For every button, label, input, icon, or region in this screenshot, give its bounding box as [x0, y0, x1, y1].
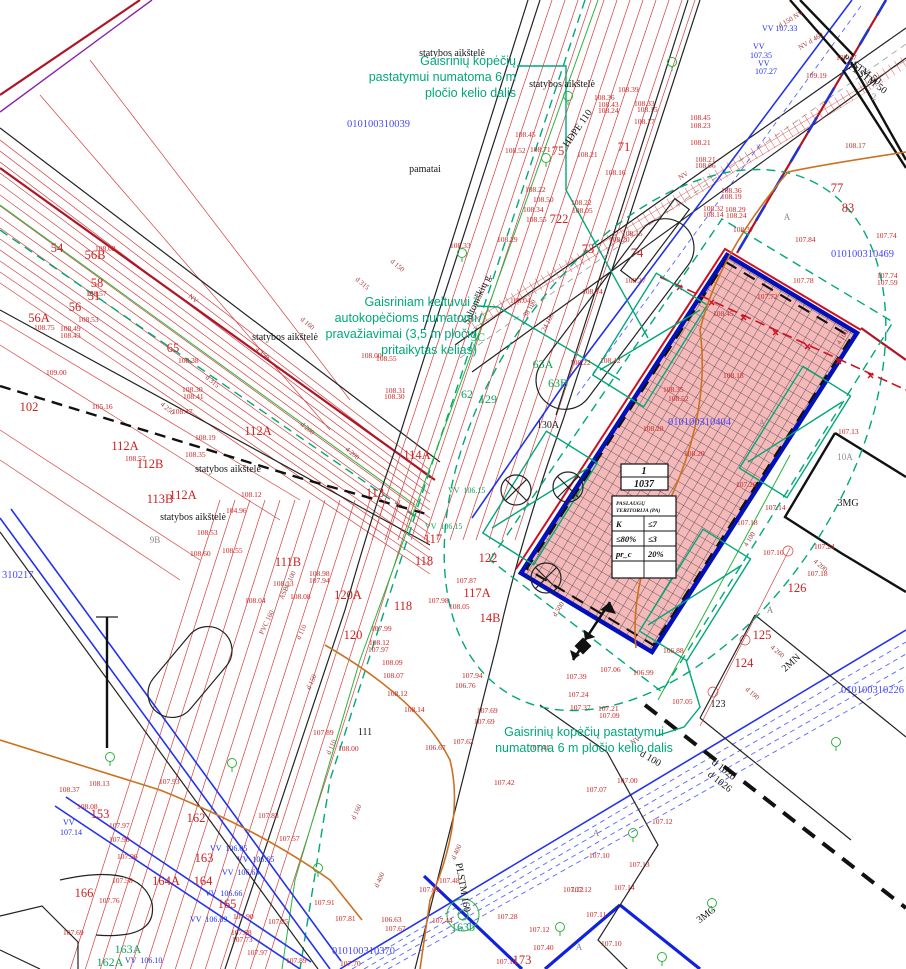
- map-label: statybos aikštelė: [252, 332, 318, 343]
- elevation-label: 108.00: [338, 744, 359, 753]
- parcel-number-red: 117A: [463, 586, 490, 600]
- parcel-number-red: 120: [344, 628, 363, 642]
- elevation-label: 108.04: [245, 596, 266, 605]
- elevation-label: 108.05: [572, 206, 593, 215]
- elevation-label: 108.21: [577, 150, 598, 159]
- site-plan-canvas: 1 1037 PASLAUGŲ TERITORIJA (PA) K ≤7 ≤80…: [0, 0, 906, 969]
- elevation-label: 107.13: [629, 860, 650, 869]
- elevation-label: 107.13: [838, 427, 859, 436]
- elevation-label: 107.89: [286, 956, 307, 965]
- parcel-number-red: 74: [631, 246, 644, 260]
- parcel-number-red: 114A: [403, 448, 430, 462]
- fire-access-annotation: pritaikytas kelias): [381, 343, 477, 357]
- elevation-label: 108.27: [625, 276, 646, 285]
- elevation-label: 106.63: [381, 915, 402, 924]
- planned-building: [0, 66, 906, 969]
- water-valve-label: VV 106.09: [190, 915, 227, 924]
- elevation-label: 108.14: [404, 705, 425, 714]
- territory-header-1: PASLAUGŲ: [616, 501, 646, 507]
- elevation-label: 107.85: [268, 917, 289, 926]
- elevation-label: 107.94: [462, 671, 483, 680]
- map-label: 123: [711, 699, 726, 710]
- water-valve-label: VV 106.10: [125, 956, 162, 965]
- elevation-label: 108.19: [721, 192, 742, 201]
- elevation-label: 107.18: [737, 518, 758, 527]
- elevation-label: 109.00: [46, 368, 67, 377]
- elevation-label: 107.12: [563, 885, 584, 894]
- elevation-label: 108.17: [634, 117, 655, 126]
- pipe-dimension-label: d 110: [295, 623, 309, 641]
- parcel-number-green: 129: [479, 392, 497, 406]
- parcel-number-red: 118: [394, 599, 412, 613]
- elevation-label: 107.73: [232, 935, 253, 944]
- territory-parameters-table: PASLAUGŲ TERITORIJA (PA) K ≤7 ≤80% ≤3 pr…: [612, 496, 676, 578]
- water-valve-label: 107.27: [755, 67, 777, 76]
- cadastral-number: 310217: [2, 570, 34, 581]
- parcel-number-red: 54: [51, 241, 64, 255]
- parcel-number-red: 173: [513, 953, 532, 967]
- elevation-label: 107.97: [247, 948, 268, 957]
- parcel-letter: A: [759, 418, 766, 428]
- parcel-number-red: 113B: [147, 492, 174, 506]
- elevation-label: 107.67: [385, 924, 406, 933]
- map-label: 3MG: [695, 904, 718, 926]
- parcel-number-red: 111B: [275, 555, 301, 569]
- water-valve-label: 107.14: [60, 828, 82, 837]
- parcel-number-red: 153: [91, 807, 110, 821]
- elevation-label: 105.16: [92, 402, 113, 411]
- elevation-label: 107.78: [793, 276, 814, 285]
- elevation-label: 107.70: [340, 959, 361, 968]
- parcel-number-green: 162A: [97, 955, 124, 969]
- parcel-letter: 2: [872, 92, 877, 102]
- elevation-label: 108.12: [387, 689, 408, 698]
- map-label: statybos aikštelė: [529, 79, 595, 90]
- site-plan-drawing: 1 1037 PASLAUGŲ TERITORIJA (PA) K ≤7 ≤80…: [0, 0, 906, 969]
- elevation-label: 108.30: [384, 392, 405, 401]
- elevation-label: 108.20: [684, 449, 705, 458]
- elevation-label: 107.69: [63, 928, 84, 937]
- parcel-number-green: 62: [461, 387, 473, 401]
- pipe-dimension-label: d 500: [551, 600, 566, 618]
- elevation-label: 108.37: [59, 785, 80, 794]
- cadastral-number: 010100310039: [347, 119, 410, 130]
- elevation-label: 107.87: [456, 576, 477, 585]
- water-valve-label-green: VV 106.15: [448, 486, 485, 495]
- elevation-label: 108.29: [497, 235, 518, 244]
- parcel-number-red: 56B: [85, 248, 106, 262]
- elevation-label: 108.07: [383, 671, 404, 680]
- parcel-number-red: 71: [618, 140, 631, 154]
- parcel-letter: A: [593, 828, 600, 838]
- elevation-label: 108.18: [723, 371, 744, 380]
- pipe-dimension-label: d 190: [744, 685, 762, 702]
- elevation-label: 108.53: [197, 528, 218, 537]
- elevation-label: 107.11: [586, 910, 607, 919]
- elevation-label: 108.09: [382, 658, 403, 667]
- elevation-label: 108.21: [690, 138, 711, 147]
- cadastral-number: 010100310404: [668, 417, 732, 428]
- pipe-dimension-label: 24 100: [540, 312, 556, 333]
- map-label: 111: [358, 727, 372, 738]
- map-label: statybos aikštelė: [160, 512, 226, 523]
- elevation-label: 107.89: [313, 728, 334, 737]
- elevation-label: 108.14: [582, 287, 603, 296]
- parcel-number-red: 56: [69, 300, 82, 314]
- pipe-dimension-label: NV: [677, 170, 690, 182]
- elevation-label: 108.39: [618, 85, 639, 94]
- elevation-label: 108.28: [643, 424, 664, 433]
- parcel-number-red: 165: [218, 897, 237, 911]
- map-label: 3MG: [837, 498, 858, 509]
- elevation-label: 108.15: [622, 229, 643, 238]
- elevation-label: 107.91: [314, 898, 335, 907]
- pipe-dimension-label: 4 100: [742, 530, 757, 548]
- elevation-label: 107.42: [494, 778, 515, 787]
- elevation-label: 107.97: [368, 645, 389, 654]
- fire-access-annotation: pastatymui numatoma 6 m: [369, 70, 516, 84]
- parcel-number-red: 112A: [169, 488, 196, 502]
- pipe-dimension-label: d 200: [299, 420, 317, 437]
- parcel-number-red: 102: [20, 400, 39, 414]
- parcel-number-red: 122: [479, 551, 498, 565]
- zone-number-table: 1 1037: [621, 464, 668, 490]
- elevation-label: 107.39: [566, 672, 587, 681]
- elevation-label: 107.74: [876, 231, 897, 240]
- elevation-label: 108.34: [523, 205, 544, 214]
- elevation-label: 108.24: [598, 106, 619, 115]
- elevation-label: 108.45: [515, 130, 536, 139]
- elevation-label: 106.76: [455, 681, 476, 690]
- elevation-label: 107.90: [109, 835, 130, 844]
- parcel-number-red: 112A: [111, 439, 138, 453]
- table-cell: pr_c: [615, 549, 632, 559]
- elevation-label: 107.14: [765, 503, 786, 512]
- elevation-label: 108.22: [570, 358, 591, 367]
- pipe-dimension-label: d 160: [299, 315, 317, 332]
- elevation-label: 104.96: [226, 506, 247, 515]
- elevation-label: 107.97: [109, 821, 130, 830]
- fire-access-annotation: autokopėčioms numatomi: [335, 311, 477, 325]
- elevation-label: 107.12: [529, 925, 550, 934]
- parcel-number-red: 65: [167, 341, 180, 355]
- parcel-number-red: 166: [75, 886, 94, 900]
- fire-access-annotation: pločio kelio dalis: [425, 86, 516, 100]
- elevation-label: 107.72: [757, 292, 778, 301]
- table-cell: ≤80%: [616, 534, 636, 544]
- pipe-dimension-label: d 150: [305, 673, 319, 691]
- cadastral-number: 010100310469: [831, 249, 894, 260]
- fire-access-annotation: Gaisrinių kopėčių: [420, 54, 516, 68]
- parcel-number-red: 118: [415, 554, 433, 568]
- elevation-label: 107.57: [279, 834, 300, 843]
- pipe-dimension-label: d 160: [350, 803, 364, 821]
- elevation-label: 108.60: [190, 549, 211, 558]
- elevation-label: 107.69: [419, 885, 440, 894]
- parcel-number-red: 51: [88, 289, 101, 303]
- water-valve-label: VV: [63, 818, 75, 827]
- elevation-label: 108.42: [600, 356, 621, 365]
- elevation-label: 108.08: [290, 592, 311, 601]
- elevation-label: 107.00: [617, 776, 638, 785]
- elevation-label: 107.58: [112, 876, 133, 885]
- elevation-label: 107.10: [589, 851, 610, 860]
- water-valve-label: VV 106.65: [222, 868, 259, 877]
- parcel-number-red: 56A: [28, 311, 50, 325]
- parcel-number-green: 63A: [533, 357, 554, 371]
- elevation-label: 107.05: [672, 697, 693, 706]
- elevation-label: 107.69: [477, 706, 498, 715]
- parcel-number-red: 113: [366, 486, 384, 500]
- fire-access-annotation: pravažiavimai (3,5 m pločio: [326, 327, 477, 341]
- parcel-number-red: 117: [424, 532, 442, 546]
- parcel-number-red: 125: [753, 628, 772, 642]
- water-valve-label: VV 106.65: [237, 855, 274, 864]
- elevation-label: 108.35: [663, 385, 684, 394]
- fire-access-annotation: Gaisrinių kopėčių pastatymui: [504, 725, 664, 739]
- elevation-label: 107.62: [453, 737, 474, 746]
- parcel-number-red: 14B: [480, 611, 501, 625]
- elevation-label: 107.69: [474, 717, 495, 726]
- elevation-label: 108.12: [241, 490, 262, 499]
- elevation-label: 108.45: [713, 309, 734, 318]
- elevation-label: 107.83: [258, 811, 279, 820]
- table-cell: 20%: [647, 549, 664, 559]
- fire-access-annotation: Gaisriniam keltuvui /: [364, 295, 477, 309]
- elevation-label: 107.26: [736, 480, 757, 489]
- elevation-label: 106.88: [663, 646, 684, 655]
- water-valve-label-green: VV 106.15: [425, 522, 462, 531]
- parcel-number-green: 163b: [451, 920, 475, 934]
- elevation-label: 107.37: [570, 703, 591, 712]
- elevation-label: 108.47: [172, 407, 193, 416]
- elevation-label: 107.06: [600, 665, 621, 674]
- elevation-label: 108.23: [690, 121, 711, 130]
- cadastral-number: 010100310370: [332, 946, 395, 957]
- parcel-number-red: 75: [552, 144, 565, 158]
- elevation-label: 107.59: [877, 278, 898, 287]
- elevation-label: 107.84: [795, 235, 816, 244]
- pipe-dimension-label: d 150: [389, 257, 407, 274]
- elevation-label: 107.98: [428, 596, 449, 605]
- water-valve-label: VV: [753, 42, 765, 51]
- elevation-label: 107.90: [233, 912, 254, 921]
- pipe-dimension-label: d 315: [204, 373, 222, 390]
- elevation-label: 108.43: [60, 331, 81, 340]
- elevation-label: 108.14: [703, 210, 724, 219]
- elevation-label: 107.28: [497, 912, 518, 921]
- pipe-dimension-label: d 400: [373, 871, 387, 889]
- parcel-number-red: 112B: [137, 457, 164, 471]
- elevation-label: 106.67: [425, 743, 446, 752]
- parcel-number-green: 163A: [115, 942, 142, 956]
- elevation-label: 108.24: [726, 211, 747, 220]
- pipe-dimension-label: PVC 160: [258, 609, 276, 636]
- elevation-label: 108.33: [450, 241, 471, 250]
- zone-number: 1: [642, 466, 647, 477]
- elevation-label: 107.07: [586, 785, 607, 794]
- elevation-label: 108.13: [89, 779, 110, 788]
- parcel-letter: A: [784, 212, 791, 222]
- parcel-number-red: 722: [550, 212, 569, 226]
- parcel-number-red: 120A: [334, 588, 362, 602]
- parcel-letter: A: [767, 605, 774, 615]
- elevation-label: 107.99: [371, 624, 392, 633]
- parcel-letter: 9B: [150, 535, 161, 545]
- parcel-number-red: 163: [195, 851, 214, 865]
- elevation-label: 108.30: [182, 385, 203, 394]
- parcel-letter: 10A: [837, 452, 853, 462]
- elevation-label: 106.99: [633, 668, 654, 677]
- elevation-label: 108.53: [78, 315, 99, 324]
- map-label: statybos aikštelė: [195, 464, 261, 475]
- elevation-label: 108.17: [845, 141, 866, 150]
- elevation-label: 107.76: [99, 896, 120, 905]
- pipe-dimension-label: 4 260: [769, 643, 787, 660]
- fire-access-annotation: numatoma 6 m pločio kelio dalis: [495, 741, 673, 755]
- elevation-label: 108.55: [526, 215, 547, 224]
- parcel-number-green: 63B: [548, 376, 568, 390]
- elevation-label: 108.35: [185, 450, 206, 459]
- elevation-label: 107.81: [335, 914, 356, 923]
- elevation-label: 108.38: [178, 356, 199, 365]
- elevation-label: 108.19: [195, 433, 216, 442]
- elevation-label: 108.52: [668, 394, 689, 403]
- elevation-label: 108.52: [505, 146, 526, 155]
- elevation-label: 107.94: [309, 576, 330, 585]
- parcel-number-red: 58: [91, 276, 104, 290]
- elevation-label: 108.16: [605, 168, 626, 177]
- elevation-label: 107.96: [117, 852, 138, 861]
- elevation-label: 107.93: [159, 777, 180, 786]
- elevation-label: 108.06: [695, 161, 716, 170]
- parcel-number-red: 83: [842, 201, 855, 215]
- elevation-label: 108.05: [449, 602, 470, 611]
- parcel-number-red: 73: [582, 242, 595, 256]
- elevation-label: 108.00: [361, 351, 382, 360]
- elevation-label: 109.19: [806, 71, 827, 80]
- pipe-dimension-label: d 315: [354, 275, 372, 292]
- elevation-label: 107.24: [814, 542, 835, 551]
- territory-header-2: TERITORIJA (PA): [616, 507, 661, 514]
- elevation-label: 108.37: [733, 225, 754, 234]
- parcel-number-red: 162: [187, 811, 206, 825]
- table-cell: ≤3: [648, 534, 658, 544]
- parcel-letter: A: [576, 942, 583, 952]
- parcel-number-red: 164: [194, 874, 214, 888]
- elevation-label: 107.24: [568, 690, 589, 699]
- parcel-number-red: 124: [735, 656, 755, 670]
- elevation-label: 107.09: [599, 711, 620, 720]
- elevation-label: 108.15: [637, 105, 658, 114]
- pipe-dimension-label: d 400: [450, 843, 464, 861]
- elevation-label: 107.40: [533, 943, 554, 952]
- table-cell: ≤7: [648, 519, 658, 529]
- elevation-label: 107.10: [601, 939, 622, 948]
- elevation-label: 108.22: [525, 185, 546, 194]
- elevation-label: 107.10: [763, 548, 784, 557]
- cadastral-number: 010100310226: [841, 685, 904, 696]
- elevation-label: 108.71: [530, 145, 551, 154]
- elevation-label: 107.12: [652, 817, 673, 826]
- elevation-label: 108.50: [533, 195, 554, 204]
- elevation-label: 108.55: [222, 546, 243, 555]
- parcel-number-red: 126: [788, 581, 807, 595]
- elevation-label: 107.14: [614, 883, 635, 892]
- parcel-number-red: 112A: [244, 424, 271, 438]
- parcel-number-red: 77: [831, 181, 844, 195]
- map-label: 130A: [537, 420, 560, 431]
- zone-area: 1037: [634, 479, 655, 490]
- water-valve-label: VV 106.66: [205, 889, 242, 898]
- map-label: pamatai: [409, 164, 441, 175]
- elevation-label: 107.44: [432, 916, 453, 925]
- water-valve-label: VV 106.05: [210, 844, 247, 853]
- parcel-number-red: 164A: [152, 874, 180, 888]
